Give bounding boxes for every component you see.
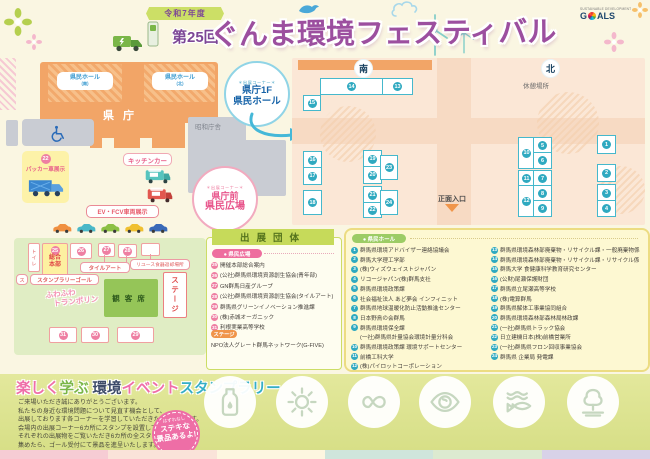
item-text: 群馬県環境森林部森林局林政課 <box>500 314 578 324</box>
item-text: 群馬県 企業局 発電課 <box>500 353 553 363</box>
plaza-box-29: 29 <box>117 327 154 343</box>
exhibitor-item: 22日立建機日本(株)前橋営業所 <box>491 333 645 343</box>
item-text: 群馬県環境アドバイザー連絡協議会 <box>360 246 450 256</box>
item-number: 21 <box>491 324 498 331</box>
hall-south-label: 県民ホール (南) <box>57 72 113 90</box>
exhibitor-item: 11前橋工科大学 <box>351 353 491 363</box>
booth-number: 4 <box>602 204 611 213</box>
plaza-box-number: 29 <box>131 331 140 340</box>
booth-number: 16 <box>308 156 317 165</box>
hall-south-sub: (南) <box>82 82 89 87</box>
booth-24: 24 <box>380 190 398 215</box>
earth-icon <box>419 376 471 428</box>
booth-6: 6 <box>533 152 552 169</box>
car-icon <box>148 221 168 239</box>
booth-15: 15 <box>303 95 321 111</box>
item-number: 12 <box>351 363 358 370</box>
booth-number: 24 <box>385 198 394 207</box>
stage-exhibitor: NPO法人グレート群馬ネットワーク(G-FIVE) <box>211 341 324 349</box>
ev-display-label: EV・FCV車両展示 <box>86 205 159 218</box>
hall-north-label: 県民ホール (北) <box>152 72 208 90</box>
item-text: 群馬県解体工事業協同組合 <box>500 304 567 314</box>
exhibitor-item: 23(一社)群馬県フロン回収事業協会 <box>491 343 645 353</box>
item-text: (株)電算群馬 <box>500 295 532 305</box>
exhibitor-item: 29群馬県グリーンイノベーション推進課 <box>211 303 339 313</box>
booth-number: 18 <box>308 198 317 207</box>
item-number: 14 <box>491 256 498 263</box>
exhibitor-item: 5群馬県環境政策課 <box>351 285 491 295</box>
dotted-divider <box>410 238 638 239</box>
flower-icon <box>26 34 42 50</box>
booth-number: 23 <box>385 163 394 172</box>
hq-label: 総合 <box>49 255 61 262</box>
item-text: 群馬県環境森林部廃棄物・リサイクル課・リサイクル係 <box>500 256 639 266</box>
exhibitor-item: 30(株)赤城オーガニック <box>211 313 339 323</box>
item-number: 5 <box>351 285 358 292</box>
plaza-box-28: 28 <box>118 244 137 258</box>
booth-number: 20 <box>368 171 377 180</box>
sun-icon <box>276 376 328 428</box>
item-number: 15 <box>491 266 498 273</box>
title-part: 楽しく <box>16 381 60 397</box>
stamp-mark-box: ス <box>16 274 28 285</box>
item-number: 17 <box>491 285 498 292</box>
booth-number: 6 <box>538 156 547 165</box>
exhibitor-item: 17群馬県立尾瀬高等学校 <box>491 285 645 295</box>
packer-label: パッカー車展示 <box>26 165 65 173</box>
packer-number: 22 <box>41 154 51 164</box>
item-number: 10 <box>351 344 358 351</box>
sdgs-goals-text2: ALS <box>597 11 615 21</box>
strip-block <box>217 450 325 459</box>
item-text: (株)ウィズウェイストジャパン <box>360 265 436 275</box>
item-text: (株)パイロットコーポレーション <box>360 362 442 372</box>
hall-north-sub: (北) <box>177 82 184 87</box>
exhibitor-item: 19群馬県解体工事業協同組合 <box>491 304 645 314</box>
hq-number: 25 <box>51 246 60 255</box>
strip-block <box>0 450 108 459</box>
booth-9: 9 <box>533 200 552 217</box>
booth-4: 4 <box>597 200 616 217</box>
sdgs-goals-text: G <box>580 11 587 21</box>
item-number: 28 <box>211 293 218 300</box>
strip-block <box>542 450 650 459</box>
toilet-box: トイレ <box>28 243 40 272</box>
strip-block <box>433 450 541 459</box>
title-part: イベント <box>122 381 180 397</box>
plaza-corner-callout: ＊出展コーナー＊ 県庁前 県民広場 <box>192 166 258 232</box>
item-number: 25 <box>211 262 218 269</box>
building-notch <box>102 138 114 148</box>
booth-13: 13 <box>382 78 413 95</box>
item-number: 2 <box>351 256 358 263</box>
item-text: 群馬大学 食健康科学教育研究センター <box>500 265 597 275</box>
exhibitor-item: 9群馬県環境保全課 <box>351 324 491 334</box>
item-number: 9 <box>351 324 358 331</box>
parking-area <box>22 119 94 146</box>
hall-exhibitor-list-right: 13群馬県環境森林部廃棄物・リサイクル課・一般廃棄物係14群馬県環境森林部廃棄物… <box>491 246 645 362</box>
plaza-box-30: 30 <box>81 327 109 343</box>
dotted-divider <box>264 253 334 254</box>
exhibitor-item: 3(株)ウィズウェイストジャパン <box>351 265 491 275</box>
car-icon <box>124 221 144 239</box>
item-text: (公社)群馬県環境資源創生協会(タイルアート) <box>220 292 333 302</box>
booth-number: 14 <box>347 82 356 91</box>
callout-line1: 県庁前 <box>211 191 238 201</box>
item-number: 20 <box>491 314 498 321</box>
item-text: 群馬県環境森林部廃棄物・リサイクル課・一般廃棄物係 <box>500 246 640 256</box>
item-text: 日立建機日本(株)前橋営業所 <box>500 333 571 343</box>
booth-23: 23 <box>380 155 398 180</box>
entrance-arrow-icon <box>445 204 459 212</box>
event-flyer: 令和7年度 第25回 ぐんま環境フェスティバル SUSTAINABLE DEVE… <box>0 0 650 459</box>
plaza-section-badge: ● 県民広場 <box>212 249 262 258</box>
item-number: 22 <box>491 334 498 341</box>
item-number: 24 <box>491 353 498 360</box>
exhibitor-item: 15群馬大学 食健康科学教育研究センター <box>491 265 645 275</box>
booth-number: 13 <box>393 82 402 91</box>
hall-exhibitor-list-left: 1群馬県環境アドバイザー連絡協議会2群馬大学理工学部3(株)ウィズウェイストジャ… <box>351 246 491 372</box>
item-text: 群馬県環境保全課 <box>360 324 405 334</box>
exhibitor-item: 21(一社)群馬県トラック協会 <box>491 324 645 334</box>
booth-number: 21 <box>368 191 377 200</box>
item-number: 1 <box>351 247 358 254</box>
item-number: 16 <box>491 276 498 283</box>
plaza-box-number: 31 <box>59 331 68 340</box>
item-text: 日本野鳥の会群馬 <box>360 314 405 324</box>
kitchen-truck-icon <box>143 167 173 185</box>
plaza-box-27: 27 <box>98 243 115 257</box>
sdgs-wheel-icon <box>588 12 596 20</box>
item-number: 7 <box>351 305 358 312</box>
booth-2: 2 <box>597 164 616 182</box>
item-text: 群馬県立尾瀬高等学校 <box>500 285 556 295</box>
rest-area-label: 休憩場所 <box>523 80 549 90</box>
item-text: 群馬県地球温暖化防止活動推進センター <box>360 304 461 314</box>
car-icon <box>76 221 96 239</box>
exhibitor-item: 14群馬県環境森林部廃棄物・リサイクル課・リサイクル係 <box>491 256 645 266</box>
title-part: 環境 <box>89 381 122 397</box>
item-text: 前橋工科大学 <box>360 353 394 363</box>
exhibitor-item: 8日本野鳥の会群馬 <box>351 314 491 324</box>
wheelchair-icon <box>49 124 67 142</box>
exhibitor-item: 13群馬県環境森林部廃棄物・リサイクル課・一般廃棄物係 <box>491 246 645 256</box>
stripe-decor <box>0 58 16 110</box>
exhibitor-item: 24群馬県 企業局 発電課 <box>491 353 645 363</box>
booth-number: 8 <box>538 189 547 198</box>
booth-number: 3 <box>602 189 611 198</box>
strip-block <box>108 450 216 459</box>
tile-art-label: タイルアート <box>80 262 130 273</box>
item-text: (株)赤城オーガニック <box>220 313 274 323</box>
title-part: 学ぶ <box>60 381 89 397</box>
hq-label2: 本部 <box>49 262 61 269</box>
callout-line2: 県民広場 <box>205 201 245 213</box>
car-display-row <box>52 221 168 239</box>
tree-icon <box>567 376 619 428</box>
kencho-label: 県庁 <box>103 107 143 123</box>
plaza-box-31: 31 <box>49 327 77 343</box>
stamp-goal-label: スタンプラリーゴール <box>30 274 99 285</box>
kitchen-truck-icon <box>145 186 175 204</box>
ev-truck-icon <box>112 32 144 52</box>
stage: ステージ <box>163 272 187 318</box>
exhibitor-item: 25開催本部総合案内 <box>211 261 339 271</box>
kitchen-car-label: キッチンカー <box>123 153 172 166</box>
bottom-color-strip <box>0 450 650 459</box>
fish-icon <box>493 376 545 428</box>
car-icon <box>52 221 72 239</box>
item-text: 群馬大学理工学部 <box>360 256 405 266</box>
item-number: 19 <box>491 305 498 312</box>
sdgs-logo: SUSTAINABLE DEVELOPMENT GALS <box>580 7 646 21</box>
item-text: 社会福祉法人 あど夢会 インフィニット <box>360 295 458 305</box>
item-number: 4 <box>351 276 358 283</box>
plaza-box-number: 30 <box>91 331 100 340</box>
north-badge: 北 <box>542 60 559 77</box>
infinity-icon <box>348 376 400 428</box>
showa-label: 昭和庁舎 <box>195 121 221 131</box>
bottle-icon <box>204 376 256 428</box>
booth-number: 5 <box>538 141 547 150</box>
item-text: (公社)群馬県環境資源創生協会(青年部) <box>220 271 317 281</box>
exhibitor-item: 10群馬県環境政策課 環境サポートセンター <box>351 343 491 353</box>
south-badge: 南 <box>355 60 372 77</box>
exhibitor-panel-title: 出展団体 <box>212 229 334 245</box>
booth-1: 1 <box>597 135 616 154</box>
packer-display-box: 22 パッカー車展示 <box>22 151 69 203</box>
strip-block <box>325 450 433 459</box>
item-number: 11 <box>351 353 358 360</box>
booth-number: 1 <box>602 140 611 149</box>
booth-number: 9 <box>538 204 547 213</box>
booth-18: 18 <box>303 190 322 215</box>
item-text: (一社)群馬県計量協会環境計量分科会 <box>360 333 453 343</box>
exhibitor-item: 4リコージャパン(株)群馬支社 <box>351 275 491 285</box>
item-text: (一社)群馬県フロン回収事業協会 <box>500 343 582 353</box>
item-text: (一社)群馬県トラック協会 <box>500 324 565 334</box>
garbage-truck-icon <box>27 174 65 198</box>
booth-number: 15 <box>308 99 317 108</box>
item-number: 27 <box>211 282 218 289</box>
exhibitor-item-cont: (一社)群馬県計量協会環境計量分科会 <box>351 333 491 343</box>
item-text: (公財)尾瀬保護財団 <box>500 275 548 285</box>
item-number: 23 <box>491 344 498 351</box>
main-entrance-label: 正面入口 <box>438 194 466 204</box>
exhibitor-item: 28(公社)群馬県環境資源創生協会(タイルアート) <box>211 292 339 302</box>
booth-number: 19 <box>368 155 377 164</box>
item-number: 6 <box>351 295 358 302</box>
plaza-box-26: 26 <box>70 243 92 259</box>
item-text: GN群馬日産グループ <box>220 282 273 292</box>
flower-icon <box>604 32 624 52</box>
plaza-box-number: 27 <box>102 246 111 255</box>
car-icon <box>100 221 120 239</box>
exhibitor-item: 27GN群馬日産グループ <box>211 282 339 292</box>
audience-seats: 観客席 <box>104 279 158 317</box>
building-notch <box>140 138 152 148</box>
booth-14: 14 <box>320 78 383 95</box>
exhibitor-item: 20群馬県環境森林部森林局林政課 <box>491 314 645 324</box>
callout-line2: 県民ホール <box>233 97 281 108</box>
description-line: ご来場いただき誠にありがとうございます。 <box>18 399 202 408</box>
booth-17: 17 <box>303 167 322 185</box>
parking-strip <box>6 120 18 146</box>
exhibitor-item: 12(株)パイロットコーポレーション <box>351 362 491 372</box>
item-number: 18 <box>491 295 498 302</box>
booth-number: 12 <box>522 197 531 206</box>
page-title: ぐんま環境フェスティバル <box>210 8 557 53</box>
ev-charger-icon <box>147 20 159 48</box>
exhibitor-item: 6社会福祉法人 あど夢会 インフィニット <box>351 295 491 305</box>
booth-number: 7 <box>538 174 547 183</box>
booth-number: 17 <box>308 172 317 181</box>
plaza-box-number: 28 <box>123 247 132 256</box>
item-text: 開催本部総合案内 <box>220 261 265 271</box>
exhibitor-item: 26(公社)群馬県環境資源創生協会(青年部) <box>211 271 339 281</box>
booth-number: 22 <box>368 206 377 215</box>
flower-icon <box>4 8 32 36</box>
item-number: 8 <box>351 314 358 321</box>
stage-section-badge: ステージ <box>211 330 237 338</box>
item-number: 29 <box>211 303 218 310</box>
booth-number: 11 <box>522 174 531 183</box>
item-text: 群馬県環境政策課 環境サポートセンター <box>360 343 462 353</box>
item-number: 3 <box>351 266 358 273</box>
exhibitor-item: 18(株)電算群馬 <box>491 295 645 305</box>
exhibitor-item: 7群馬県地球温暖化防止活動推進センター <box>351 304 491 314</box>
reuse-return-label: リユース食器返却場所 <box>130 259 190 270</box>
plaza-exhibitor-list: 25開催本部総合案内26(公社)群馬県環境資源創生協会(青年部)27GN群馬日産… <box>211 261 339 334</box>
exhibitor-item: 2群馬大学理工学部 <box>351 256 491 266</box>
item-number: 26 <box>211 272 218 279</box>
booth-number: 2 <box>602 169 611 178</box>
exhibitor-item: 1群馬県環境アドバイザー連絡協議会 <box>351 246 491 256</box>
plaza-box-number: 26 <box>77 247 86 256</box>
item-text: 群馬県環境政策課 <box>360 285 405 295</box>
item-text: リコージャパン(株)群馬支社 <box>360 275 431 285</box>
item-text: 群馬県グリーンイノベーション推進課 <box>220 303 315 313</box>
exhibitor-item: 16(公財)尾瀬保護財団 <box>491 275 645 285</box>
item-number: 13 <box>491 247 498 254</box>
booth-number: 10 <box>522 149 531 158</box>
hall-section-badge: ● 県民ホール <box>352 234 406 243</box>
item-number: 30 <box>211 314 218 321</box>
